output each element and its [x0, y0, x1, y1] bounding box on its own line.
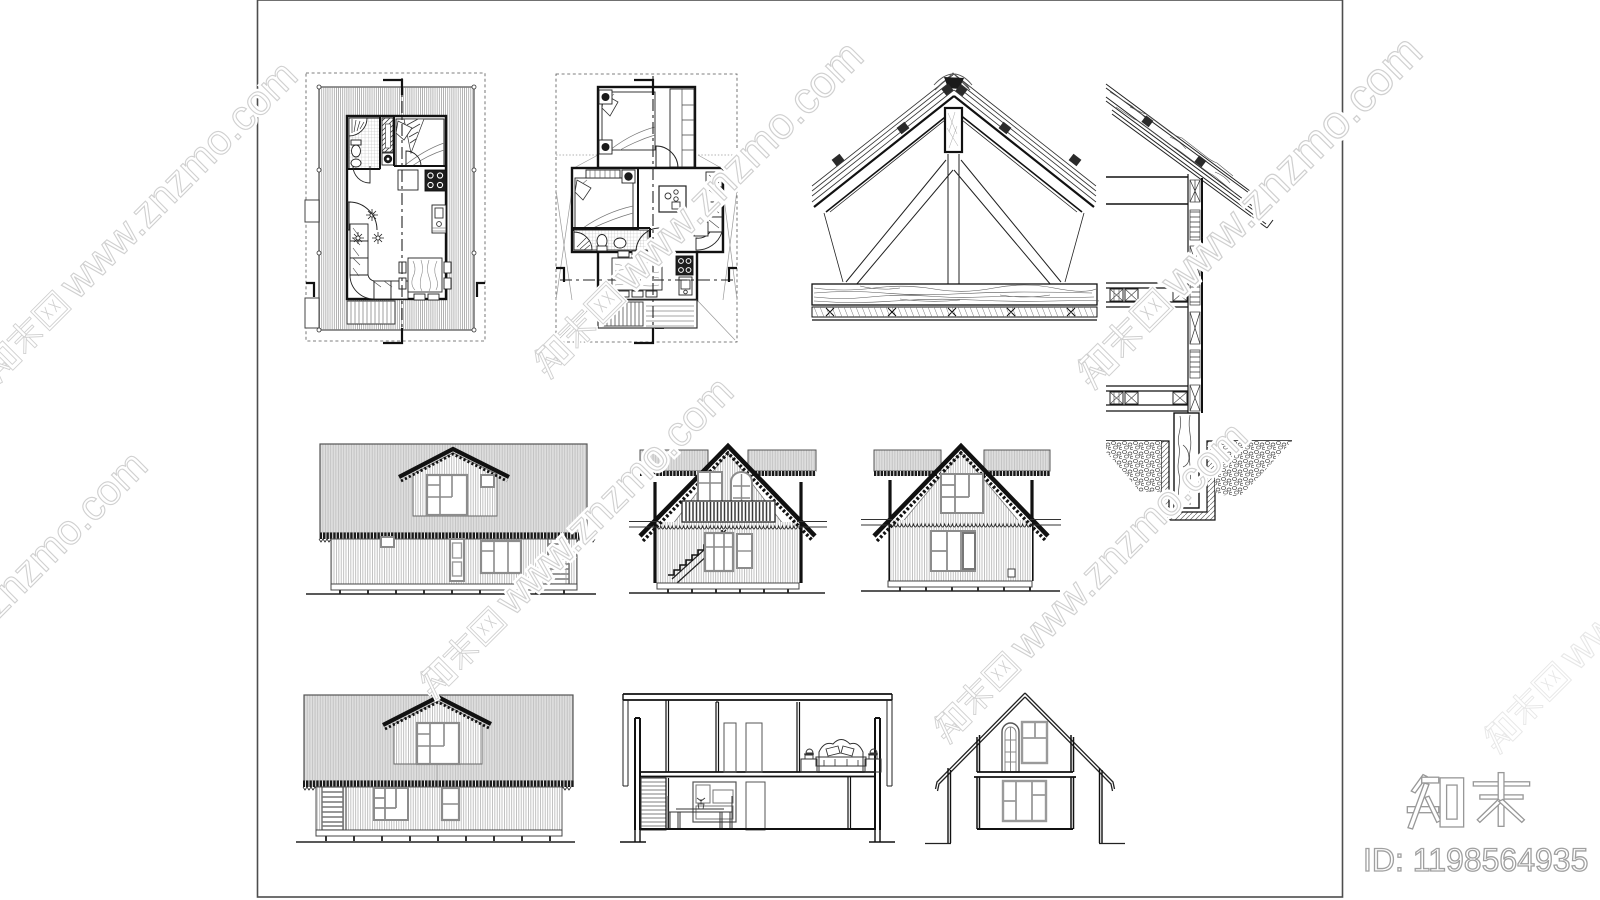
svg-text:ID: 1198564935: ID: 1198564935	[1363, 842, 1588, 878]
